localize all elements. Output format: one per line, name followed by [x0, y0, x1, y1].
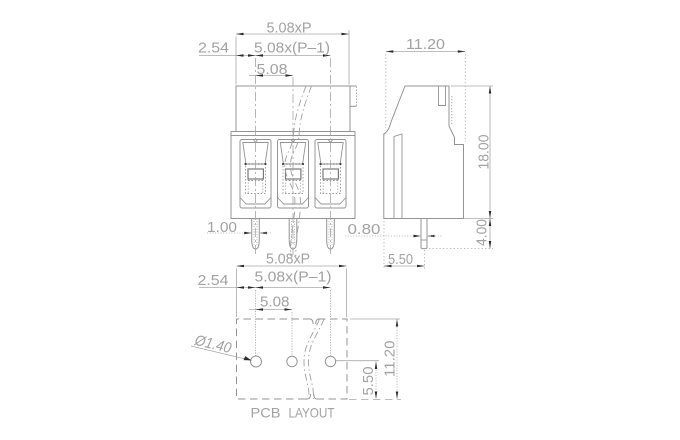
svg-text:2.54: 2.54 — [198, 41, 229, 57]
svg-text:LAYOUT: LAYOUT — [289, 405, 335, 421]
svg-text:5.50: 5.50 — [388, 252, 413, 268]
svg-text:11.20: 11.20 — [406, 37, 445, 53]
svg-text:1.00: 1.00 — [207, 220, 237, 236]
svg-text:18.00: 18.00 — [477, 135, 493, 170]
svg-text:2.54: 2.54 — [198, 273, 229, 289]
svg-text:5.08x(P–1): 5.08x(P–1) — [255, 270, 332, 286]
svg-text:Ø1.40: Ø1.40 — [192, 332, 233, 358]
svg-text:5.50: 5.50 — [361, 367, 377, 396]
svg-text:0.80: 0.80 — [348, 222, 381, 238]
svg-text:5.08: 5.08 — [260, 295, 290, 311]
svg-text:4.00: 4.00 — [475, 219, 491, 246]
svg-text:PCB: PCB — [251, 405, 281, 421]
svg-text:11.20: 11.20 — [383, 341, 399, 378]
svg-text:5.08xP: 5.08xP — [266, 252, 310, 268]
svg-text:5.08x(P–1): 5.08x(P–1) — [254, 41, 330, 57]
svg-text:5.08: 5.08 — [257, 62, 288, 78]
svg-text:5.08xP: 5.08xP — [267, 21, 312, 37]
